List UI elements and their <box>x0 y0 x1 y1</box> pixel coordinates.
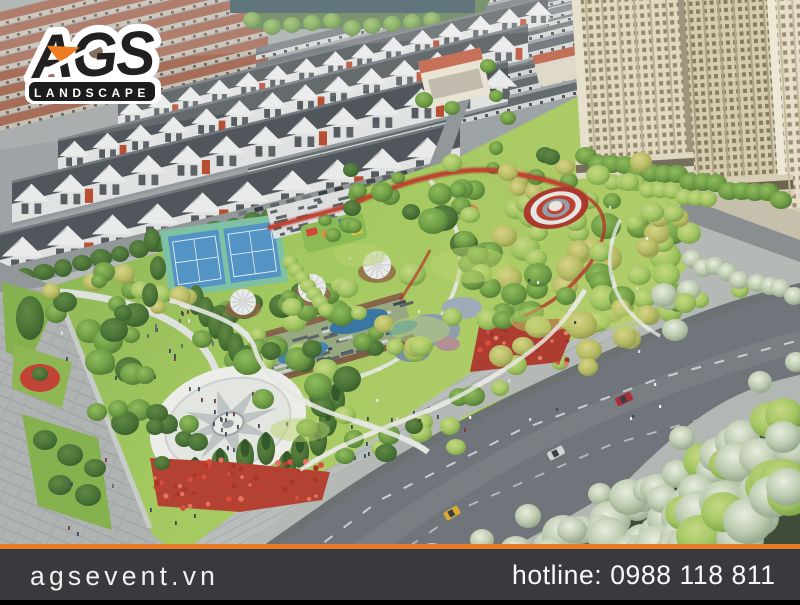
svg-text:AGS: AGS <box>28 17 156 91</box>
svg-text:agsevent.vn: agsevent.vn <box>30 561 219 591</box>
svg-text:LANDSCAPE: LANDSCAPE <box>34 86 150 100</box>
svg-text:hotline: 0988 118 811: hotline: 0988 118 811 <box>512 560 776 590</box>
